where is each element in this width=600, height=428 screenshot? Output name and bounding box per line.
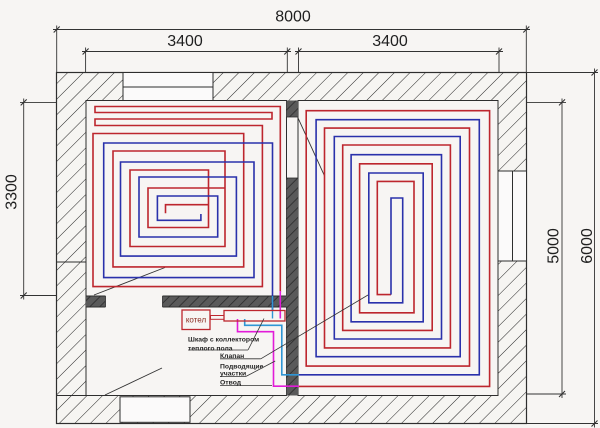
svg-text:5000: 5000 xyxy=(546,228,563,264)
svg-text:Подводящие: Подводящие xyxy=(220,364,264,371)
svg-text:Клапан: Клапан xyxy=(220,353,244,360)
svg-text:8000: 8000 xyxy=(275,9,311,26)
svg-text:теплого пола: теплого пола xyxy=(188,346,233,353)
svg-text:3400: 3400 xyxy=(167,33,203,50)
svg-text:3400: 3400 xyxy=(372,33,408,50)
svg-text:Шкаф с коллектором: Шкаф с коллектором xyxy=(188,337,259,344)
svg-text:участки: участки xyxy=(220,371,246,378)
svg-text:котел: котел xyxy=(186,316,207,325)
svg-text:3300: 3300 xyxy=(4,174,21,210)
svg-text:6000: 6000 xyxy=(579,228,596,264)
svg-text:Отвод: Отвод xyxy=(220,379,242,386)
